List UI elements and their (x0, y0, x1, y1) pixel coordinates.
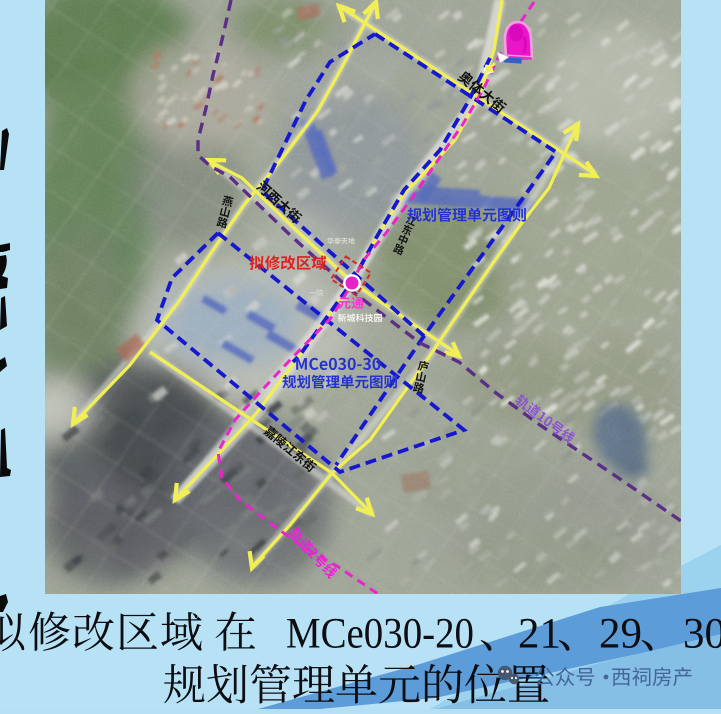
svg-text:30: 30 (683, 611, 721, 658)
svg-text:29: 29 (599, 611, 642, 658)
svg-text:MCe030-20: MCe030-20 (286, 611, 474, 658)
svg-text:21: 21 (518, 611, 561, 658)
